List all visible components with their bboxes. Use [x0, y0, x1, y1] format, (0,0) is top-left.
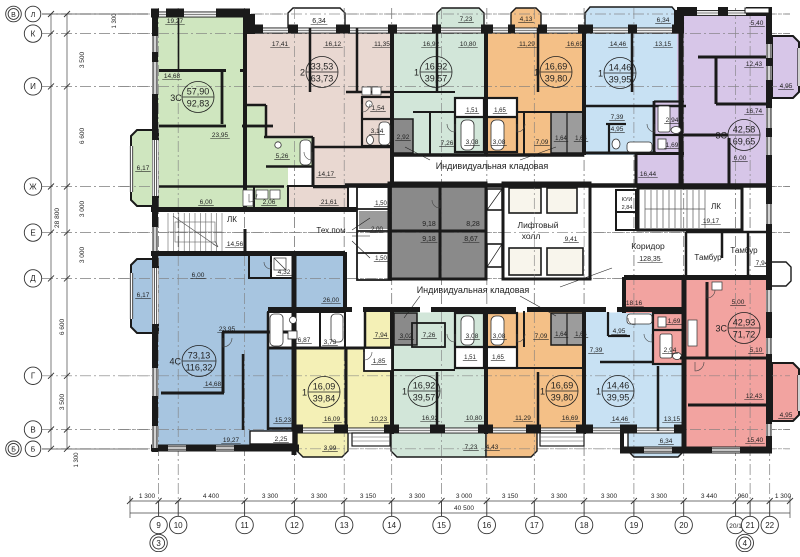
svg-text:4: 4 — [743, 539, 748, 548]
svg-text:39,95: 39,95 — [607, 393, 630, 403]
svg-text:Л: Л — [31, 12, 36, 19]
svg-text:16,09: 16,09 — [324, 416, 341, 423]
svg-text:3 300: 3 300 — [601, 493, 618, 500]
svg-text:12,43: 12,43 — [746, 61, 763, 68]
svg-text:16,44: 16,44 — [640, 171, 657, 178]
svg-text:1,51: 1,51 — [464, 355, 476, 361]
svg-text:4,95: 4,95 — [780, 83, 793, 90]
svg-text:20/1: 20/1 — [729, 523, 742, 530]
svg-text:3С: 3С — [715, 131, 727, 141]
svg-text:10,80: 10,80 — [460, 41, 477, 48]
svg-text:13: 13 — [340, 521, 349, 530]
svg-text:92,83: 92,83 — [187, 99, 210, 109]
svg-text:4,95: 4,95 — [780, 412, 793, 419]
svg-text:3 000: 3 000 — [456, 493, 473, 500]
svg-text:1,65: 1,65 — [494, 108, 506, 114]
svg-text:69,65: 69,65 — [733, 137, 756, 147]
svg-text:3,14: 3,14 — [371, 128, 384, 135]
svg-text:3 300: 3 300 — [311, 493, 328, 500]
svg-text:19,27: 19,27 — [167, 18, 184, 25]
svg-text:2,25: 2,25 — [275, 436, 288, 443]
svg-text:16,12: 16,12 — [325, 41, 342, 48]
svg-text:5,10: 5,10 — [750, 347, 763, 354]
svg-text:7,23: 7,23 — [460, 16, 473, 23]
svg-text:39,80: 39,80 — [545, 74, 568, 84]
svg-text:2,94: 2,94 — [664, 347, 677, 354]
svg-text:3,73: 3,73 — [324, 339, 337, 346]
svg-text:Индивидуальная кладовая: Индивидуальная кладовая — [417, 285, 530, 295]
svg-text:1,69: 1,69 — [668, 318, 681, 325]
svg-text:6,34: 6,34 — [312, 18, 326, 25]
svg-text:16,92: 16,92 — [423, 41, 440, 48]
svg-text:57,90: 57,90 — [187, 87, 210, 97]
svg-text:1: 1 — [402, 387, 407, 397]
svg-text:22: 22 — [765, 521, 774, 530]
svg-text:1,64: 1,64 — [555, 136, 567, 142]
svg-text:15,23: 15,23 — [275, 417, 292, 424]
svg-text:9,41: 9,41 — [565, 236, 578, 243]
svg-text:3 300: 3 300 — [409, 493, 426, 500]
svg-text:1,50: 1,50 — [375, 201, 387, 207]
svg-text:1,51: 1,51 — [466, 108, 478, 114]
svg-text:21,61: 21,61 — [321, 199, 338, 206]
svg-text:15: 15 — [437, 521, 446, 530]
svg-text:Ж: Ж — [29, 182, 37, 191]
svg-text:16,92: 16,92 — [425, 62, 448, 72]
svg-text:И: И — [30, 82, 36, 91]
svg-text:16,69: 16,69 — [545, 62, 568, 72]
svg-text:1 300: 1 300 — [139, 493, 156, 500]
svg-text:1: 1 — [540, 387, 545, 397]
svg-text:9,18: 9,18 — [422, 236, 436, 243]
svg-text:7,94: 7,94 — [375, 332, 388, 339]
svg-text:13,15: 13,15 — [664, 416, 681, 423]
svg-text:18,16: 18,16 — [626, 300, 643, 307]
svg-text:17,41: 17,41 — [272, 41, 289, 48]
svg-text:16,69: 16,69 — [551, 381, 574, 391]
svg-text:23,95: 23,95 — [212, 132, 229, 139]
svg-text:3С: 3С — [715, 324, 727, 334]
svg-text:14,46: 14,46 — [607, 381, 630, 391]
svg-text:18: 18 — [580, 521, 589, 530]
svg-text:2,94: 2,94 — [666, 117, 679, 124]
svg-text:3,02: 3,02 — [400, 333, 413, 340]
svg-text:63,73: 63,73 — [311, 74, 334, 84]
svg-text:2,06: 2,06 — [263, 199, 276, 206]
svg-text:3 300: 3 300 — [262, 493, 279, 500]
svg-text:7,09: 7,09 — [536, 139, 549, 146]
svg-text:1: 1 — [414, 68, 419, 78]
svg-text:7,39: 7,39 — [611, 114, 624, 121]
svg-text:14,46: 14,46 — [610, 41, 627, 48]
svg-text:6 600: 6 600 — [79, 127, 86, 144]
svg-text:4,95: 4,95 — [613, 328, 626, 335]
svg-text:116,32: 116,32 — [186, 363, 213, 373]
svg-text:Лифтовый: Лифтовый — [517, 220, 558, 230]
svg-text:28 800: 28 800 — [54, 208, 61, 228]
svg-text:26,00: 26,00 — [323, 297, 340, 304]
svg-text:42,93: 42,93 — [733, 318, 756, 328]
svg-text:3,99: 3,99 — [324, 445, 337, 452]
svg-text:14,56: 14,56 — [227, 241, 244, 248]
svg-text:1,64: 1,64 — [575, 332, 587, 338]
svg-text:39,57: 39,57 — [425, 74, 448, 84]
svg-text:20: 20 — [679, 521, 688, 530]
svg-text:Тамбур: Тамбур — [694, 253, 722, 262]
svg-text:7,39: 7,39 — [590, 347, 603, 354]
svg-text:6,00: 6,00 — [192, 272, 205, 279]
svg-text:Б: Б — [11, 447, 16, 454]
svg-text:2,00: 2,00 — [371, 227, 383, 233]
svg-text:Е: Е — [30, 228, 35, 237]
svg-text:39,57: 39,57 — [413, 393, 436, 403]
svg-text:3 150: 3 150 — [360, 493, 377, 500]
svg-text:Тех.пом: Тех.пом — [316, 226, 345, 235]
svg-text:Б: Б — [31, 447, 36, 454]
svg-text:42,58: 42,58 — [733, 125, 756, 135]
svg-text:21: 21 — [746, 521, 755, 530]
svg-text:холл: холл — [522, 231, 541, 241]
svg-text:5,00: 5,00 — [732, 299, 745, 306]
svg-text:3 500: 3 500 — [79, 51, 86, 68]
svg-text:К: К — [31, 29, 36, 38]
svg-text:7,94: 7,94 — [756, 260, 769, 267]
svg-text:16,09: 16,09 — [313, 382, 336, 392]
svg-text:6,17: 6,17 — [137, 165, 150, 172]
svg-text:7,23: 7,23 — [465, 444, 478, 451]
svg-text:5,40: 5,40 — [751, 20, 764, 27]
svg-text:Г: Г — [31, 372, 36, 381]
svg-text:14,46: 14,46 — [612, 416, 629, 423]
svg-text:3,08: 3,08 — [466, 333, 479, 340]
svg-text:10: 10 — [174, 521, 183, 530]
svg-text:128,35: 128,35 — [639, 256, 661, 263]
svg-text:3,08: 3,08 — [493, 333, 506, 340]
svg-text:1,65: 1,65 — [492, 355, 504, 361]
svg-text:3 300: 3 300 — [651, 493, 668, 500]
svg-text:16,74: 16,74 — [746, 108, 763, 115]
svg-text:14,17: 14,17 — [318, 171, 335, 178]
svg-text:11,35: 11,35 — [374, 41, 390, 48]
svg-text:16,69: 16,69 — [567, 41, 584, 48]
svg-text:40 500: 40 500 — [454, 505, 474, 512]
svg-text:Коридор: Коридор — [631, 241, 665, 251]
svg-text:10,80: 10,80 — [466, 415, 483, 422]
svg-text:6,87: 6,87 — [298, 337, 311, 344]
svg-text:6,00: 6,00 — [734, 155, 747, 162]
svg-text:4С: 4С — [169, 357, 181, 367]
svg-text:39,95: 39,95 — [609, 75, 632, 85]
svg-text:1,64: 1,64 — [575, 136, 587, 142]
svg-text:КУИ: КУИ — [622, 197, 633, 203]
svg-text:8,67: 8,67 — [464, 236, 478, 243]
svg-text:7,26: 7,26 — [423, 332, 436, 339]
svg-text:В: В — [11, 12, 16, 19]
svg-text:14,68: 14,68 — [164, 73, 181, 80]
svg-text:3 440: 3 440 — [701, 493, 718, 500]
svg-text:1,64: 1,64 — [555, 332, 567, 338]
svg-text:1,85: 1,85 — [373, 358, 386, 365]
svg-text:17: 17 — [530, 521, 539, 530]
svg-text:1: 1 — [596, 387, 601, 397]
svg-text:1,50: 1,50 — [375, 256, 387, 262]
svg-text:3 500: 3 500 — [59, 393, 66, 410]
svg-text:19,27: 19,27 — [223, 437, 240, 444]
svg-text:4,43: 4,43 — [486, 444, 499, 451]
svg-text:9,18: 9,18 — [422, 221, 436, 228]
svg-text:4,13: 4,13 — [520, 16, 533, 23]
svg-text:12: 12 — [290, 521, 299, 530]
svg-text:6 600: 6 600 — [59, 318, 66, 335]
svg-text:3,08: 3,08 — [466, 139, 479, 146]
svg-text:16,92: 16,92 — [422, 415, 439, 422]
svg-text:19,17: 19,17 — [703, 218, 720, 225]
svg-text:6,34: 6,34 — [657, 17, 670, 24]
svg-text:ЛК: ЛК — [227, 215, 237, 224]
svg-text:1: 1 — [302, 388, 307, 398]
svg-text:3 150: 3 150 — [502, 493, 519, 500]
svg-text:3С: 3С — [170, 93, 182, 103]
svg-text:23,95: 23,95 — [219, 326, 236, 333]
svg-text:1 300: 1 300 — [112, 13, 118, 29]
svg-text:3: 3 — [156, 539, 161, 548]
svg-text:11,29: 11,29 — [519, 41, 535, 48]
svg-text:3 000: 3 000 — [79, 200, 86, 217]
svg-text:6,17: 6,17 — [137, 292, 150, 299]
svg-text:2: 2 — [300, 68, 305, 78]
svg-text:7,26: 7,26 — [441, 140, 454, 147]
svg-text:1,69: 1,69 — [666, 142, 679, 149]
svg-text:1: 1 — [534, 68, 539, 78]
svg-text:2,92: 2,92 — [397, 134, 410, 141]
svg-text:39,80: 39,80 — [551, 393, 574, 403]
svg-text:4,32: 4,32 — [278, 269, 291, 276]
svg-text:10,23: 10,23 — [371, 416, 388, 423]
svg-text:5,26: 5,26 — [276, 153, 289, 160]
svg-text:14: 14 — [387, 521, 396, 530]
svg-text:13,15: 13,15 — [655, 41, 672, 48]
svg-text:3 300: 3 300 — [551, 493, 568, 500]
svg-text:9: 9 — [156, 521, 161, 530]
svg-text:4 400: 4 400 — [203, 493, 220, 500]
svg-text:6,34: 6,34 — [660, 438, 673, 445]
svg-text:12,43: 12,43 — [746, 393, 763, 400]
svg-text:1,54: 1,54 — [372, 105, 385, 112]
svg-text:16: 16 — [482, 521, 491, 530]
svg-text:71,72: 71,72 — [733, 330, 756, 340]
svg-text:1: 1 — [598, 69, 603, 79]
svg-text:7,09: 7,09 — [535, 333, 548, 340]
svg-text:73,13: 73,13 — [188, 351, 211, 361]
svg-text:15,40: 15,40 — [747, 437, 764, 444]
svg-text:6,00: 6,00 — [200, 199, 213, 206]
svg-text:Индивидуальная кладовая: Индивидуальная кладовая — [436, 161, 549, 171]
svg-text:14,46: 14,46 — [609, 63, 632, 73]
svg-text:Тамбур: Тамбур — [730, 246, 758, 255]
svg-text:1 300: 1 300 — [74, 452, 80, 468]
svg-text:39,84: 39,84 — [313, 394, 336, 404]
svg-text:33,53: 33,53 — [311, 62, 334, 72]
svg-text:19: 19 — [629, 521, 638, 530]
svg-text:4,95: 4,95 — [611, 126, 624, 133]
svg-text:Д: Д — [30, 274, 36, 283]
svg-text:1 300: 1 300 — [775, 493, 792, 500]
svg-text:16,69: 16,69 — [562, 415, 579, 422]
svg-text:11: 11 — [240, 521, 249, 530]
svg-text:14,68: 14,68 — [205, 381, 222, 388]
svg-text:960: 960 — [738, 493, 749, 500]
svg-text:11,29: 11,29 — [515, 415, 531, 422]
svg-text:3,08: 3,08 — [493, 139, 506, 146]
svg-text:8,28: 8,28 — [466, 221, 480, 228]
svg-text:ЛК: ЛК — [711, 202, 721, 211]
svg-text:В: В — [30, 425, 35, 434]
svg-text:3 000: 3 000 — [79, 246, 86, 263]
svg-text:2,84: 2,84 — [622, 205, 633, 211]
svg-text:16,92: 16,92 — [413, 381, 436, 391]
